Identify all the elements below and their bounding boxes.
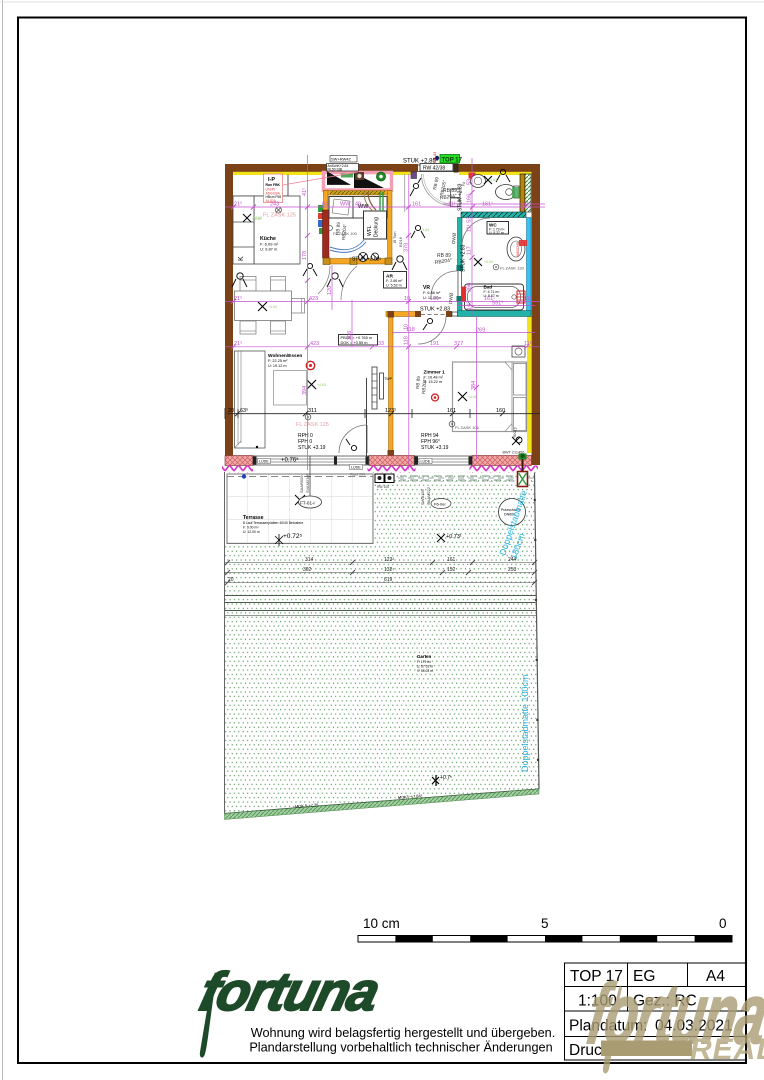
svg-text:10: 10	[403, 324, 409, 330]
svg-text:U: 19.12 m: U: 19.12 m	[268, 364, 287, 368]
svg-text:117: 117	[467, 246, 473, 255]
svg-text:377: 377	[454, 341, 463, 347]
svg-text:F: 179 m²: F: 179 m²	[417, 660, 432, 664]
svg-text:fortuna: fortuna	[194, 961, 385, 1022]
svg-text:132¹: 132¹	[384, 567, 394, 573]
svg-text:F: 9.00 m²: F: 9.00 m²	[243, 526, 259, 530]
svg-text:F: 22.25 m²: F: 22.25 m²	[268, 359, 288, 363]
svg-text:591⁵: 591⁵	[492, 300, 503, 307]
svg-text:STUK +3.19: STUK +3.19	[298, 445, 326, 451]
svg-text:+4.63: +4.63	[420, 228, 429, 232]
svg-text:Wohnung wird belagsfertig herg: Wohnung wird belagsfertig hergestellt un…	[251, 1026, 555, 1040]
svg-text:STUK +2.68⁵: STUK +2.68⁵	[352, 257, 381, 263]
svg-text:+0.76⁵: +0.76⁵	[281, 457, 299, 464]
svg-text:161: 161	[430, 296, 439, 302]
svg-text:BD16: BD16	[398, 236, 403, 247]
svg-text:120: 120	[327, 286, 333, 295]
svg-text:LÜDE: LÜDE	[259, 460, 269, 464]
svg-text:RW 100: RW 100	[377, 485, 389, 489]
svg-text:161¹: 161¹	[482, 202, 493, 208]
svg-text:+4.63: +4.63	[268, 305, 277, 309]
svg-text:WFL: WFL	[367, 225, 373, 236]
svg-text:53: 53	[467, 179, 473, 185]
svg-text:Ø Tsm: Ø Tsm	[392, 231, 397, 243]
svg-text:123²: 123²	[384, 557, 394, 563]
svg-text:SAAR509: SAAR509	[299, 475, 304, 493]
svg-text:LÜDE: LÜDE	[421, 460, 431, 464]
svg-text:STUK +3.19: STUK +3.19	[421, 445, 449, 451]
svg-text:394: 394	[302, 386, 308, 395]
svg-text:+4.63: +4.63	[253, 216, 262, 220]
svg-text:Garten: Garten	[417, 654, 431, 659]
svg-text:+0.7⁵: +0.7⁵	[440, 775, 452, 781]
svg-text:11¹: 11¹	[524, 341, 532, 347]
svg-text:Doppelstabmatte 100cm: Doppelstabmatte 100cm	[520, 674, 530, 772]
svg-text:SVAM238³: SVAM238³	[305, 473, 310, 493]
svg-text:143: 143	[467, 301, 473, 310]
svg-text:DOK = +0.59 m: DOK = +0.59 m	[341, 340, 368, 345]
svg-text:REAL: REAL	[690, 1033, 764, 1066]
svg-text:U: 5.37 m: U: 5.37 m	[489, 231, 504, 235]
svg-text:311: 311	[308, 408, 317, 414]
svg-text:8 Lauf Terrassenplatten 40/40: 8 Lauf Terrassenplatten 40/40 Betostere	[243, 521, 303, 525]
svg-text:253: 253	[508, 567, 517, 573]
svg-text:49: 49	[355, 202, 361, 208]
svg-text:+4.63: +4.63	[488, 178, 497, 182]
svg-text:378: 378	[403, 243, 409, 252]
svg-text:384: 384	[471, 381, 477, 390]
svg-text:Bad: Bad	[484, 285, 493, 290]
svg-text:11¹ 53: 11¹ 53	[467, 217, 473, 232]
svg-text:619: 619	[384, 577, 393, 583]
svg-text:10 cm: 10 cm	[363, 916, 400, 931]
svg-text:152: 152	[447, 567, 456, 573]
svg-text:LÜDE: LÜDE	[351, 466, 361, 470]
svg-text:+4.63: +4.63	[484, 260, 493, 264]
svg-text:FL ZASK 125: FL ZASK 125	[296, 422, 329, 428]
svg-text:U: 12.00 m: U: 12.00 m	[243, 530, 260, 534]
svg-text:269: 269	[476, 328, 485, 334]
svg-text:5: 5	[541, 916, 549, 931]
svg-text:STUK +2.83: STUK +2.83	[461, 244, 467, 272]
svg-text:266: 266	[467, 283, 473, 292]
svg-text:161: 161	[412, 202, 421, 208]
svg-text:F: 2.66 m²: F: 2.66 m²	[386, 279, 403, 283]
svg-text:178: 178	[302, 251, 308, 260]
svg-text:+4.63: +4.63	[468, 395, 477, 399]
svg-text:314: 314	[305, 557, 314, 563]
svg-text:+0.72⁵: +0.72⁵	[283, 533, 302, 540]
svg-text:TWP: TWP	[384, 377, 393, 381]
svg-text:V: 54.02 m: V: 54.02 m	[417, 669, 433, 673]
svg-text:243: 243	[270, 202, 279, 208]
svg-text:RN 43: RN 43	[432, 151, 437, 163]
svg-text:FL ZASK 106: FL ZASK 106	[455, 425, 480, 430]
svg-text:STUK +2.83: STUK +2.83	[420, 307, 450, 313]
svg-text:20: 20	[228, 577, 234, 583]
svg-text:118: 118	[403, 336, 409, 345]
svg-text:U: 5.52 m: U: 5.52 m	[386, 284, 402, 288]
svg-text:160: 160	[496, 408, 505, 414]
svg-text:Deckung: Deckung	[374, 217, 380, 237]
svg-text:33: 33	[378, 341, 384, 347]
svg-text:FL ZASK 125: FL ZASK 125	[263, 213, 296, 219]
svg-text:191: 191	[430, 341, 439, 347]
svg-text:63⁵: 63⁵	[240, 407, 248, 414]
svg-text:DWØ: DWØ	[448, 292, 454, 304]
svg-text:21⁵: 21⁵	[234, 201, 242, 208]
svg-text:WW: WW	[340, 202, 351, 208]
svg-text:161: 161	[447, 408, 456, 414]
svg-text:161: 161	[447, 557, 456, 563]
svg-text:306: 306	[347, 331, 353, 340]
svg-text:K: K	[238, 256, 245, 261]
svg-text:FL ZASK 130: FL ZASK 130	[500, 266, 525, 271]
svg-text:Rigol 200...: Rigol 200...	[350, 473, 368, 477]
svg-text:DWØ: DWØ	[451, 232, 457, 244]
svg-text:423: 423	[309, 296, 318, 302]
svg-text:Plandarstellung vorbehaltlich: Plandarstellung vorbehaltlich technische…	[249, 1041, 552, 1055]
svg-text:+4.63: +4.63	[317, 383, 326, 387]
svg-text:123⁵: 123⁵	[385, 407, 396, 414]
svg-text:244: 244	[508, 557, 517, 563]
svg-text:21⁵: 21⁵	[234, 340, 242, 347]
svg-text:161⁵: 161⁵	[520, 201, 531, 208]
svg-text:TOP 17: TOP 17	[442, 157, 463, 163]
svg-text:RL50 StB: RL50 StB	[328, 168, 343, 172]
svg-text:+0.73¹: +0.73¹	[446, 534, 462, 540]
svg-text:302: 302	[303, 567, 312, 573]
svg-text:423: 423	[310, 341, 319, 347]
svg-text:STUK +2.83: STUK +2.83	[458, 183, 464, 211]
svg-text:F6-0er: F6-0er	[434, 502, 446, 507]
svg-text:20: 20	[228, 408, 234, 414]
svg-text:63: 63	[322, 202, 328, 208]
svg-text:11¹: 11¹	[524, 296, 532, 302]
svg-text:FT-01-i: FT-01-i	[300, 501, 315, 506]
svg-text:Ron FBK: Ron FBK	[266, 183, 281, 187]
svg-text:11¹: 11¹	[448, 202, 456, 208]
svg-text:SW+RW42: SW+RW42	[331, 157, 352, 162]
svg-text:10: 10	[404, 296, 410, 302]
svg-text:SWB156: SWB156	[420, 488, 425, 505]
svg-text:F: 6.86 m²: F: 6.86 m²	[423, 291, 441, 295]
svg-text:41⁵: 41⁵	[301, 188, 308, 196]
svg-text:RW 42/38: RW 42/38	[423, 166, 445, 172]
svg-text:U: 9.87 m: U: 9.87 m	[260, 247, 278, 252]
svg-text:166: 166	[467, 194, 473, 203]
svg-text:21⁵: 21⁵	[234, 295, 242, 302]
svg-text:0: 0	[719, 916, 727, 931]
svg-text:SAAM222: SAAM222	[426, 486, 431, 505]
svg-text:U: 57.02 m: U: 57.02 m	[417, 665, 433, 669]
